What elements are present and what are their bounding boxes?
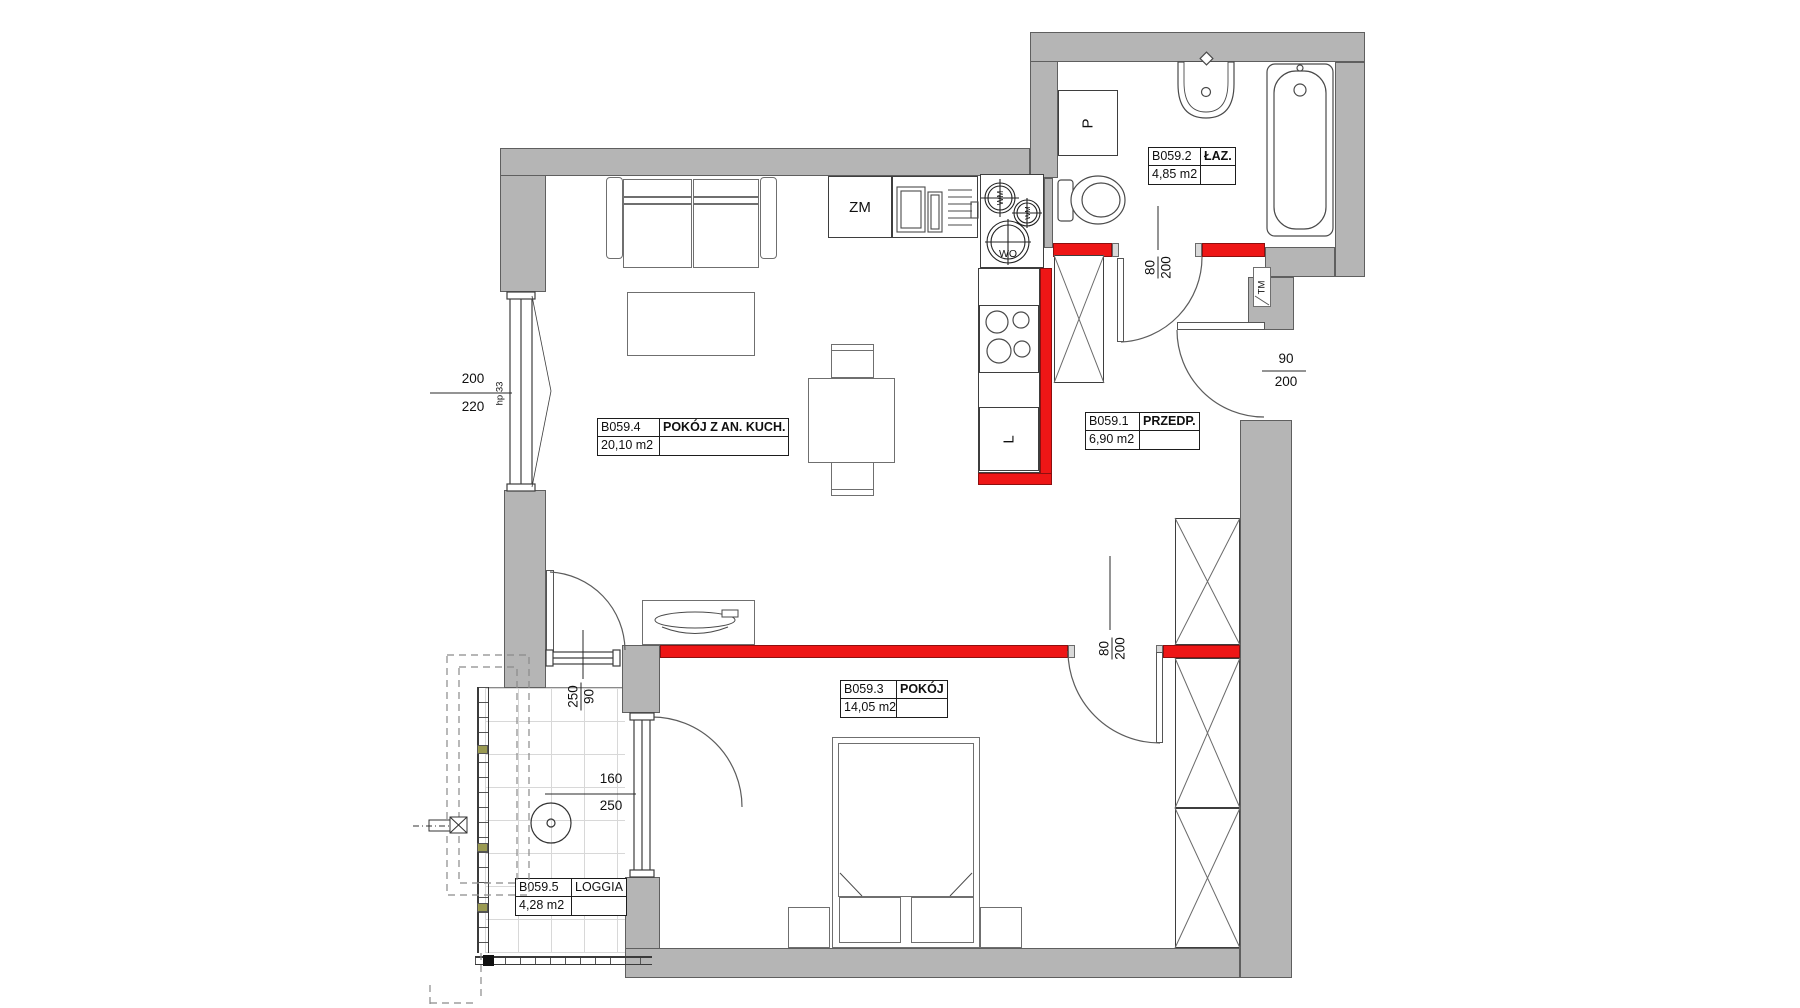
utility-shaft [980, 174, 1044, 268]
sofa-seat [693, 204, 759, 268]
washing-machine-label: P [1058, 90, 1118, 156]
sofa-seat [623, 204, 692, 268]
railing-post [477, 903, 488, 912]
room-label-hallway: B059.1 PRZEDP. 6,90 m2 [1085, 412, 1200, 450]
room-label-bedroom: B059.3 POKÓJ 14,05 m2 [840, 680, 948, 718]
living-window-opening [504, 292, 546, 490]
wall-bath-right [1335, 62, 1365, 277]
red-wall-bath-right [1202, 243, 1265, 257]
wall-bath-left [1030, 61, 1058, 178]
railing-post [477, 843, 488, 852]
sofa-back-cushion [693, 179, 759, 197]
sofa-armrest [760, 177, 777, 259]
railing-anchor [483, 955, 494, 966]
dim-entry-door-width: 90 [1268, 351, 1304, 366]
meter-box-label: TM [1253, 267, 1271, 307]
red-wall-kitchen-vertical [1040, 268, 1052, 485]
entry-door-leaf [1177, 322, 1265, 330]
sofa-back-strip [623, 197, 692, 204]
wall-below-bedroom-window [625, 877, 660, 949]
entry-door-arc [1177, 330, 1264, 417]
bed-pillow [839, 897, 901, 943]
room-area: 4,28 m2 [516, 897, 572, 915]
railing-post [477, 745, 488, 754]
room-id: B059.4 [598, 419, 660, 437]
dim-loggia-window-width: 160 [588, 771, 634, 786]
loggia-railing-bottom [475, 956, 652, 965]
bedroom-window-opening [625, 713, 660, 877]
toilet [1058, 176, 1125, 224]
room-label-bathroom: B059.2 ŁAZ. 4,85 m2 [1148, 147, 1236, 185]
red-wall-kitchen-bottom [978, 473, 1052, 485]
wall-bottom [625, 948, 1240, 978]
wall-bath-top [1030, 32, 1365, 62]
commode [642, 600, 755, 645]
room-id: B059.1 [1086, 413, 1140, 431]
wall-left-upper [500, 175, 546, 292]
room-name: LOGGIA [572, 879, 626, 897]
door-jamb [1068, 645, 1075, 658]
dim-bathroom-door: 80200 [1143, 246, 1174, 290]
red-wall-bedroom-left [660, 645, 1068, 658]
kitchen-sink-unit [892, 176, 978, 238]
balcony-tie-anchor [413, 817, 467, 833]
sofa-back-strip [693, 197, 759, 204]
room-name: ŁAZ. [1201, 148, 1235, 166]
door-jamb [1195, 243, 1202, 257]
dining-chair-back [831, 489, 874, 496]
stove [979, 305, 1039, 373]
floor-plan: ZM L P TM B059.4 POKÓJ Z AN. KUCH. 20,10… [0, 0, 1800, 1008]
dim-loggia-door: 25090 [566, 675, 597, 719]
wall-left-lower [504, 490, 546, 688]
dim-bedroom-door: 80200 [1097, 627, 1128, 671]
nightstand [788, 907, 830, 948]
room-area: 6,90 m2 [1086, 431, 1140, 449]
dim-entry-door-height: 200 [1268, 374, 1304, 389]
balcony-door-opening [546, 648, 622, 670]
wall-living-top [500, 148, 1030, 176]
wall-loggia-corner [622, 645, 660, 713]
dishwasher-label: ZM [828, 176, 892, 238]
hallway-wardrobe [1175, 518, 1240, 645]
room-area: 14,05 m2 [841, 699, 897, 717]
room-area: 20,10 m2 [598, 437, 660, 455]
balcony-door-leaf [546, 570, 554, 652]
bathroom-sink [1178, 52, 1234, 118]
dining-chair-back [831, 344, 874, 351]
coffee-table [627, 292, 755, 356]
bed-pillow [911, 897, 974, 943]
bathroom-door-leaf [1117, 258, 1124, 342]
wall-shaft-divider [1044, 178, 1053, 248]
bedroom-door-leaf [1156, 652, 1163, 743]
balcony-door-arc [550, 572, 625, 650]
loggia-railing-left [477, 687, 489, 953]
room-name: POKÓJ [897, 681, 947, 699]
room-label-living: B059.4 POKÓJ Z AN. KUCH. 20,10 m2 [597, 418, 789, 456]
room-id: B059.2 [1149, 148, 1201, 166]
nightstand [980, 907, 1022, 948]
room-area: 4,85 m2 [1149, 166, 1201, 184]
dim-loggia-window-height: 250 [588, 798, 634, 813]
room-name: PRZEDP. [1140, 413, 1199, 431]
wall-right [1240, 420, 1292, 978]
bedroom-window-arc [652, 717, 742, 807]
bedroom-wardrobe-upper [1175, 658, 1240, 808]
dining-table [808, 378, 895, 463]
hallway-closet [1054, 255, 1104, 383]
room-id: B059.3 [841, 681, 897, 699]
door-jamb [1112, 243, 1119, 257]
room-label-loggia: B059.5 LOGGIA 4,28 m2 [515, 878, 627, 916]
bed-mattress [838, 743, 974, 897]
sofa-back-cushion [623, 179, 692, 197]
room-id: B059.5 [516, 879, 572, 897]
red-wall-bedroom-right [1163, 645, 1240, 658]
room-name: POKÓJ Z AN. KUCH. [660, 419, 788, 437]
fridge-label: L [979, 407, 1039, 471]
bedroom-wardrobe-lower [1175, 808, 1240, 948]
bathtub [1267, 64, 1333, 236]
sofa-armrest [606, 177, 623, 259]
wall-bath-bottom-band [1265, 247, 1335, 277]
dim-sill-note: hp 33 [495, 372, 506, 416]
